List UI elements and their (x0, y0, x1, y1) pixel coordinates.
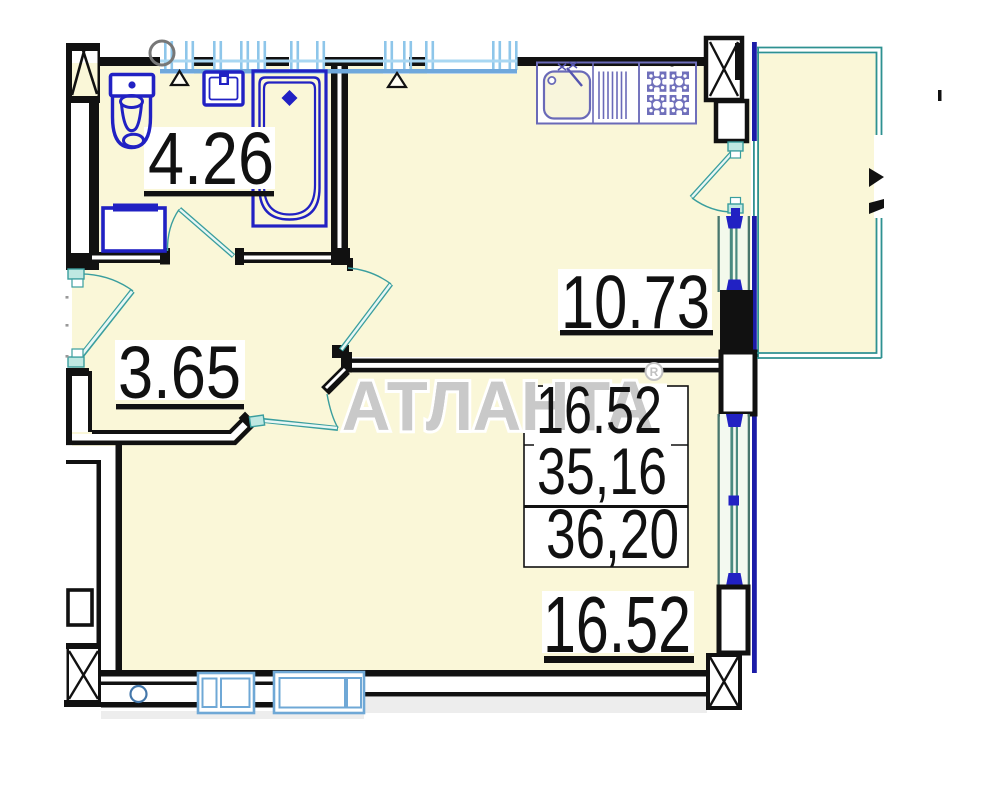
svg-text:4.26: 4.26 (148, 117, 274, 200)
svg-text:36,20: 36,20 (546, 495, 679, 573)
svg-text:3.65: 3.65 (118, 331, 241, 414)
svg-text:16.52: 16.52 (543, 580, 691, 669)
